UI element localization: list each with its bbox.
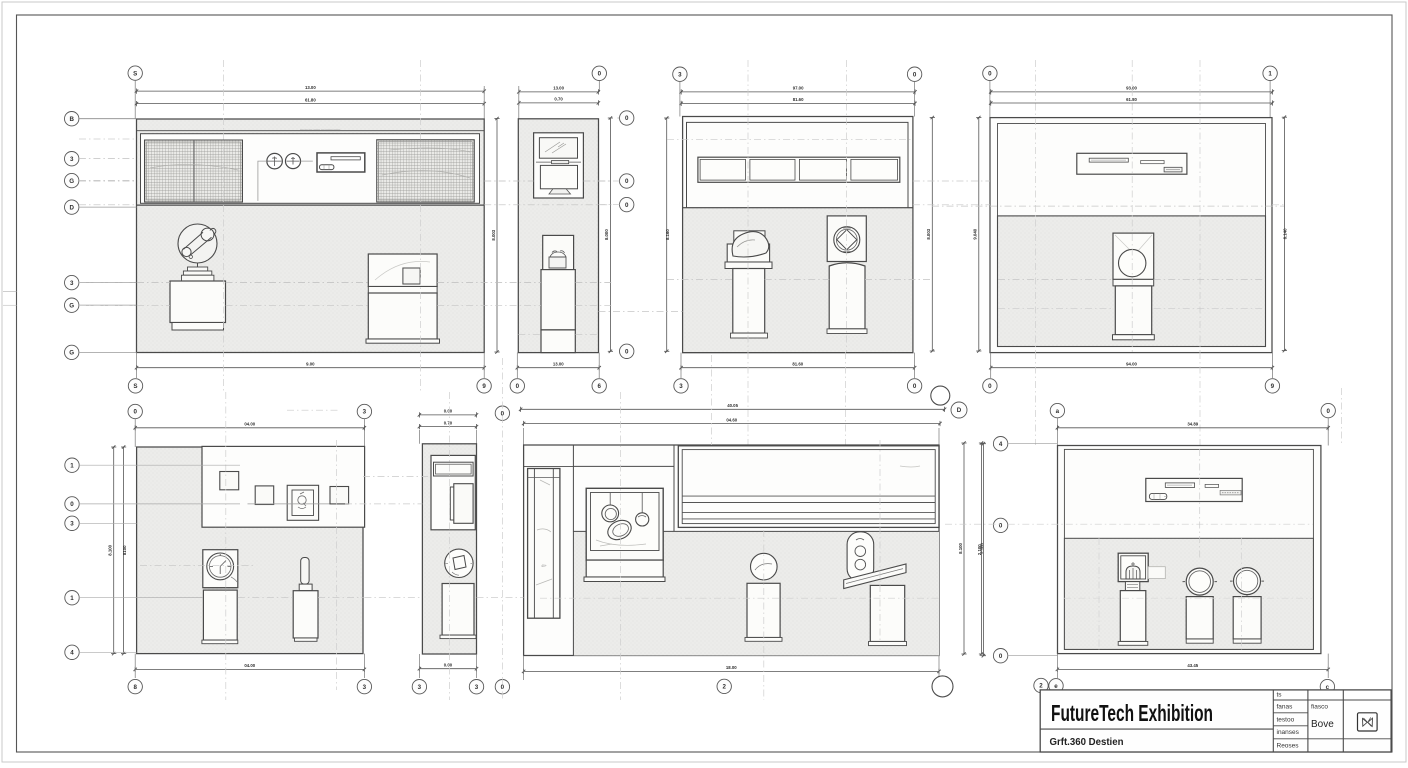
svg-text:0: 0 [516, 383, 520, 390]
svg-text:S: S [133, 70, 137, 77]
svg-text:8.003: 8.003 [491, 229, 496, 240]
svg-text:0: 0 [999, 523, 1003, 530]
svg-text:61.80: 61.80 [305, 97, 316, 102]
svg-text:3: 3 [70, 521, 74, 528]
svg-text:D: D [69, 204, 74, 211]
svg-text:FutureTech Exhibition: FutureTech Exhibition [1051, 700, 1213, 726]
svg-text:0: 0 [1326, 408, 1330, 415]
svg-text:8.140: 8.140 [1283, 228, 1288, 239]
svg-text:9: 9 [482, 383, 486, 390]
svg-text:9: 9 [1271, 383, 1275, 390]
svg-text:13.00: 13.00 [305, 85, 316, 90]
svg-text:94.00: 94.00 [1126, 362, 1137, 367]
svg-text:43.45: 43.45 [1187, 663, 1198, 668]
svg-text:97.00: 97.00 [793, 86, 804, 91]
svg-text:ts: ts [1277, 692, 1283, 699]
svg-text:e: e [1054, 683, 1058, 690]
svg-text:2.100: 2.100 [977, 544, 982, 555]
svg-text:0.70: 0.70 [444, 420, 453, 425]
svg-text:9.00: 9.00 [306, 362, 315, 367]
svg-text:0: 0 [625, 178, 629, 185]
svg-text:a: a [1056, 408, 1060, 415]
svg-text:4: 4 [999, 441, 1003, 448]
svg-text:1: 1 [70, 462, 74, 469]
svg-text:0: 0 [988, 383, 992, 390]
svg-text:34.89: 34.89 [1187, 422, 1198, 427]
svg-text:3: 3 [678, 71, 682, 78]
svg-text:3: 3 [418, 684, 422, 691]
svg-text:40+: 40+ [541, 564, 547, 568]
svg-text:3: 3 [363, 409, 367, 416]
svg-text:0: 0 [999, 653, 1003, 660]
svg-text:3: 3 [70, 156, 74, 163]
svg-text:04.00: 04.00 [244, 663, 255, 668]
svg-text:B: B [69, 116, 74, 123]
svg-text:4: 4 [70, 650, 74, 657]
svg-text:D: D [957, 407, 962, 414]
svg-text:8.100: 8.100 [108, 544, 113, 555]
svg-text:0: 0 [133, 409, 137, 416]
svg-text:13.00: 13.00 [553, 362, 564, 367]
svg-text:0: 0 [625, 202, 629, 209]
svg-text:G: G [69, 302, 74, 309]
svg-text:04.60: 04.60 [726, 417, 737, 422]
svg-text:Bove: Bove [1311, 719, 1334, 730]
svg-text:3: 3 [679, 383, 683, 390]
svg-text:0.70: 0.70 [554, 97, 563, 102]
svg-text:0: 0 [70, 501, 74, 508]
svg-text:8.100: 8.100 [958, 543, 963, 554]
svg-text:6: 6 [597, 383, 601, 390]
svg-text:0: 0 [913, 383, 917, 390]
svg-text:0.00: 0.00 [444, 409, 453, 414]
svg-text:18.00: 18.00 [726, 665, 737, 670]
svg-text:Reoses: Reoses [1277, 743, 1300, 750]
svg-text:13.00: 13.00 [553, 86, 564, 91]
svg-text:81.60: 81.60 [792, 362, 803, 367]
svg-text:61.80: 61.80 [1126, 97, 1137, 102]
svg-text:2: 2 [1039, 683, 1043, 690]
svg-text:0: 0 [625, 115, 629, 122]
svg-text:—·—·— —— —·——·——: —·—·— —— —·——·—— [300, 128, 341, 132]
svg-text:Grft.360 Destien: Grft.360 Destien [1050, 736, 1124, 748]
svg-text:fanas: fanas [1277, 704, 1294, 711]
svg-text:G: G [69, 350, 74, 357]
svg-text:G: G [69, 178, 74, 185]
svg-text:0: 0 [598, 71, 602, 78]
svg-text:8100: 8100 [122, 545, 127, 555]
svg-text:8.000: 8.000 [604, 229, 609, 240]
svg-text:8.160: 8.160 [665, 229, 670, 240]
svg-text:3: 3 [363, 684, 367, 691]
svg-text:9.040: 9.040 [973, 228, 978, 239]
svg-text:fiasco: fiasco [1311, 704, 1328, 711]
svg-text:8: 8 [133, 684, 137, 691]
svg-text:3: 3 [475, 684, 479, 691]
svg-text:1: 1 [70, 595, 74, 602]
svg-text:2: 2 [722, 684, 726, 691]
svg-text:0.00: 0.00 [444, 663, 453, 668]
svg-text:S: S [133, 383, 137, 390]
svg-text:8.003: 8.003 [926, 228, 931, 239]
svg-text:1: 1 [1268, 71, 1272, 78]
svg-text:40.05: 40.05 [727, 403, 738, 408]
svg-text:81.60: 81.60 [793, 97, 804, 102]
svg-text:04.00: 04.00 [244, 422, 255, 427]
svg-text:testoo: testoo [1277, 717, 1295, 724]
svg-text:0: 0 [913, 71, 917, 78]
svg-text:3: 3 [70, 280, 74, 287]
svg-text:0: 0 [625, 349, 629, 356]
svg-text:93.00: 93.00 [1126, 86, 1137, 91]
svg-text:0: 0 [988, 71, 992, 78]
svg-text:inanses: inanses [1277, 729, 1300, 736]
